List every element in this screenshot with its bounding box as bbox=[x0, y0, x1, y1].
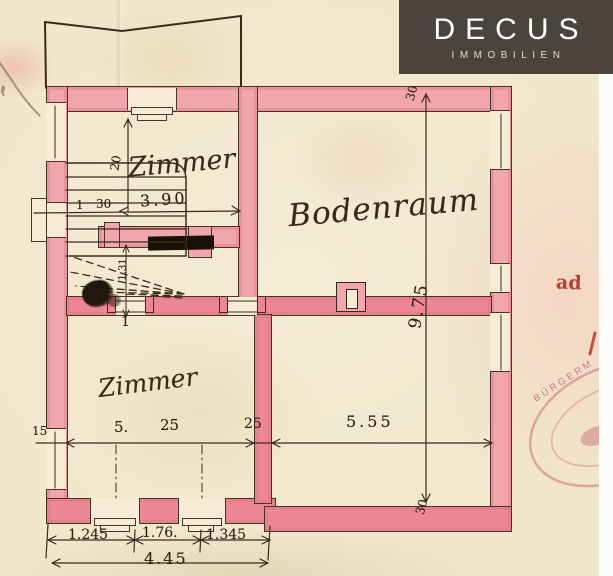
dim-label-25: 25 bbox=[160, 416, 179, 434]
logo-subtitle: IMMOBILIEN bbox=[447, 50, 566, 61]
annex-outline bbox=[45, 16, 241, 88]
dim-label-5: 5. bbox=[114, 418, 128, 436]
window-centerlines bbox=[116, 445, 202, 500]
scanned-floor-plan: BÜRGERM Zimmer Bodenraum Zimmer 3.90 20 … bbox=[0, 0, 613, 576]
decus-logo: DECUS IMMOBILIEN bbox=[399, 0, 613, 74]
dim-label-176: 1.76. bbox=[142, 525, 178, 541]
dim-label-15: 15 bbox=[32, 424, 47, 438]
dim-label-1-door: 1 bbox=[121, 314, 130, 330]
dim-label-20: 20 bbox=[107, 154, 123, 171]
dim-label-1-stair: 1 bbox=[76, 198, 84, 212]
door-thresholds bbox=[116, 301, 257, 312]
logo-brand-name: DECUS bbox=[423, 13, 588, 47]
pencil-scribble bbox=[0, 56, 40, 116]
dim-label-30-left: 30 bbox=[96, 197, 111, 211]
dim-label-445: 4.45 bbox=[144, 549, 188, 568]
dim-label-555: 5.55 bbox=[346, 412, 394, 431]
dim-line-390 bbox=[34, 211, 240, 213]
stair-treads bbox=[66, 177, 186, 242]
dim-label-1345: 1.345 bbox=[206, 527, 246, 543]
ink-blot-small bbox=[106, 294, 122, 307]
dim-label-25-wall: 25 bbox=[244, 416, 262, 432]
dim-label-131: 1.31 bbox=[117, 258, 129, 281]
dim-label-1245: 1.245 bbox=[68, 527, 108, 543]
margin-note-ad: ad bbox=[556, 272, 582, 295]
red-tick-mark bbox=[590, 333, 595, 354]
oval-stamp: BÜRGERM bbox=[511, 338, 613, 510]
dim-label-390: 3.90 bbox=[139, 188, 188, 210]
